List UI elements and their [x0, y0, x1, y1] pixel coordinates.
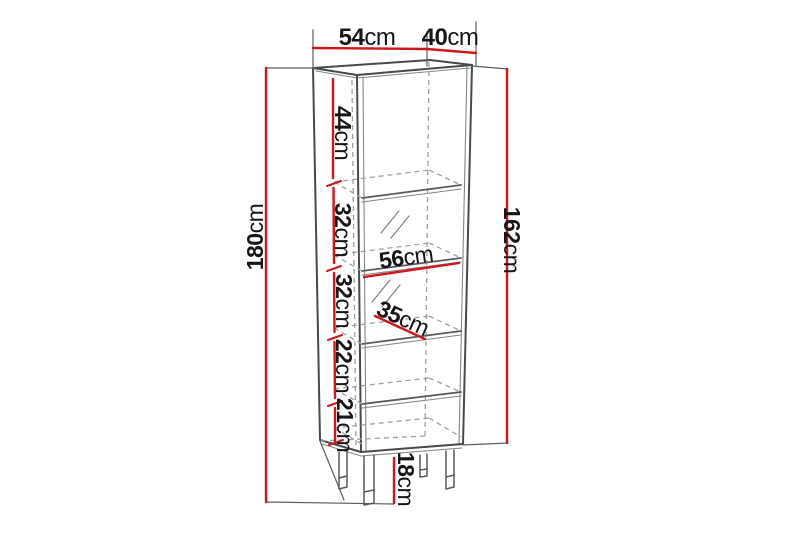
dim-label-section-4: 22cm [331, 339, 357, 393]
dim-label-section-3: 32cm [331, 274, 357, 328]
dim-label-leg-height: 18cm [393, 452, 419, 506]
dim-label-section-2: 32cm [330, 203, 356, 257]
dim-label-body-height: 162cm [499, 207, 525, 274]
cabinet-top-face [313, 60, 472, 78]
diagram-canvas: 54cm 40cm 180cm 162cm 44cm 32cm 32cm 22c… [0, 0, 800, 533]
dim-label-top-width: 54cm [339, 24, 396, 51]
furniture-dimension-diagram: 54cm 40cm 180cm 162cm 44cm 32cm 32cm 22c… [0, 0, 800, 533]
dim-label-section-1: 44cm [330, 106, 356, 160]
dimension-labels: 54cm 40cm 180cm 162cm 44cm 32cm 32cm 22c… [242, 24, 525, 506]
dim-label-top-depth: 40cm [422, 24, 479, 51]
dim-label-section-5: 21cm [332, 398, 358, 452]
dim-label-shelf-depth: 35cm [373, 295, 433, 341]
dim-label-total-height: 180cm [242, 204, 268, 271]
